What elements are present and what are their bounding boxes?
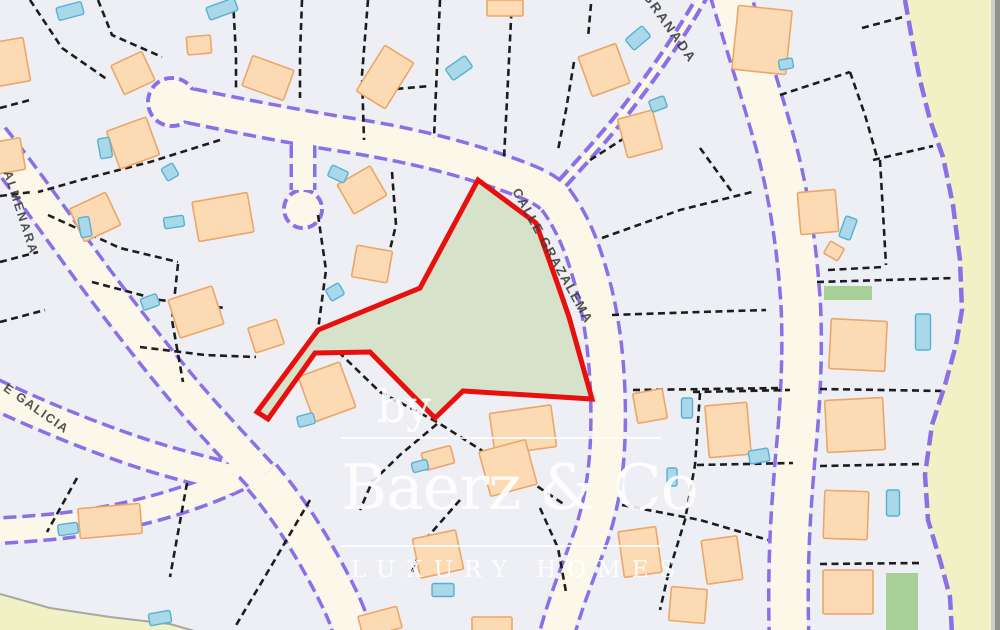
building-footprint [705, 402, 751, 457]
swimming-pool [57, 522, 78, 536]
building-footprint [823, 570, 873, 614]
map-viewport[interactable]: GRANADACALLE GRAZALEMAALMENARAE GALICIA … [0, 0, 1000, 630]
parcel-boundary-line [820, 563, 922, 564]
cul-de-sac-surface [286, 192, 320, 226]
building-footprint [186, 35, 211, 55]
building-footprint [701, 536, 743, 585]
swimming-pool [667, 468, 677, 486]
building-footprint [669, 586, 708, 623]
building-footprint [412, 530, 463, 578]
garden-parcel [886, 573, 918, 630]
building-footprint [829, 319, 888, 372]
swimming-pool [887, 490, 900, 516]
building-footprint [823, 490, 869, 540]
building-footprint [78, 503, 142, 538]
map-edge-strip [991, 0, 995, 630]
swimming-pool [916, 314, 931, 350]
garden-parcel [824, 286, 872, 300]
swimming-pool [97, 137, 112, 159]
building-footprint [633, 389, 668, 424]
swimming-pool [432, 584, 454, 597]
building-footprint [472, 617, 512, 630]
building-footprint [351, 245, 392, 283]
map-edge-strip [995, 0, 1000, 630]
building-footprint [825, 398, 886, 453]
cul-de-sac-surface [150, 80, 194, 124]
swimming-pool [682, 398, 693, 418]
building-footprint [797, 189, 839, 234]
building-footprint [618, 527, 662, 578]
swimming-pool [748, 448, 770, 464]
swimming-pool [163, 215, 184, 229]
building-footprint [487, 0, 523, 16]
swimming-pool [778, 58, 794, 70]
map-canvas[interactable]: GRANADACALLE GRAZALEMAALMENARAE GALICIA [0, 0, 1000, 630]
building-footprint [192, 192, 254, 241]
